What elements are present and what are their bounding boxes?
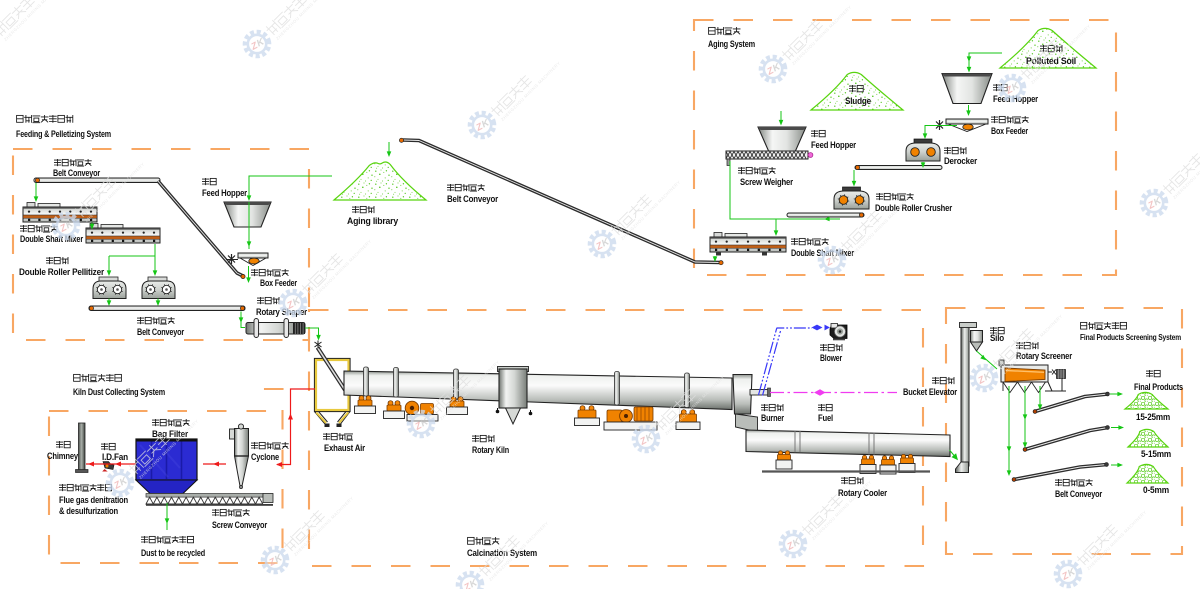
svg-text:& desulfurization: & desulfurization xyxy=(59,506,118,516)
svg-text:Kiln Dust Collecting System: Kiln Dust Collecting System xyxy=(73,387,165,397)
svg-text:Flue gas denitration: Flue gas denitration xyxy=(59,495,128,505)
svg-text:Cyclone: Cyclone xyxy=(251,452,279,462)
svg-text:Sludge: Sludge xyxy=(845,96,871,106)
svg-text:Feed Hopper: Feed Hopper xyxy=(811,140,857,150)
svg-text:ZHENGZHOU MINING MACHINERY: ZHENGZHOU MINING MACHINERY xyxy=(311,238,373,300)
svg-text:ZHENGZHOU MINING MACHINERY: ZHENGZHOU MINING MACHINERY xyxy=(1172,138,1200,200)
svg-text:Belt Conveyor: Belt Conveyor xyxy=(53,168,101,178)
svg-text:Belt Conveyor: Belt Conveyor xyxy=(137,327,185,337)
svg-text:Belt Conveyor: Belt Conveyor xyxy=(1055,489,1103,499)
svg-text:Final Products Screening Syste: Final Products Screening System xyxy=(1080,332,1181,342)
svg-text:Chimney: Chimney xyxy=(47,451,78,461)
svg-text:Double Roller Crusher: Double Roller Crusher xyxy=(875,203,953,213)
svg-text:Rotary Kiln: Rotary Kiln xyxy=(472,445,509,455)
svg-text:0-5mm: 0-5mm xyxy=(1143,485,1169,496)
svg-text:Silo: Silo xyxy=(990,333,1005,343)
svg-text:Fuel: Fuel xyxy=(818,413,833,423)
svg-text:Double Roller Pellitizer: Double Roller Pellitizer xyxy=(19,267,105,277)
svg-text:Screw Weigher: Screw Weigher xyxy=(740,177,794,187)
svg-text:Feed Hopper: Feed Hopper xyxy=(202,188,248,198)
svg-text:Aging System: Aging System xyxy=(708,39,755,49)
svg-text:Blower: Blower xyxy=(820,353,843,363)
svg-text:ZHENGZHOU MINING MACHINERY: ZHENGZHOU MINING MACHINERY xyxy=(791,4,853,66)
svg-text:Box Feeder: Box Feeder xyxy=(991,126,1029,136)
svg-text:I.D.Fan: I.D.Fan xyxy=(102,452,128,462)
svg-text:5-15mm: 5-15mm xyxy=(1141,449,1171,460)
svg-text:Bucket Elevator: Bucket Elevator xyxy=(903,387,958,397)
svg-text:Derocker: Derocker xyxy=(944,156,978,166)
svg-text:ZHENGZHOU MINING MACHINERY: ZHENGZHOU MINING MACHINERY xyxy=(275,0,337,41)
svg-text:Screw Conveyor: Screw Conveyor xyxy=(212,520,268,530)
svg-text:ZHENGZHOU MINING MACHINERY: ZHENGZHOU MINING MACHINERY xyxy=(620,179,682,241)
svg-text:Box Feeder: Box Feeder xyxy=(260,278,298,288)
svg-text:15-25mm: 15-25mm xyxy=(1136,412,1170,423)
svg-text:Belt Conveyor: Belt Conveyor xyxy=(447,194,499,204)
svg-text:ZHENGZHOU MINING MACHINERY: ZHENGZHOU MINING MACHINERY xyxy=(500,60,562,122)
svg-text:Exhaust Air: Exhaust Air xyxy=(324,443,366,453)
svg-text:ZHENGZHOU MINING MACHINERY: ZHENGZHOU MINING MACHINERY xyxy=(293,495,355,557)
svg-text:Feeding & Pelletizing System: Feeding & Pelletizing System xyxy=(16,129,111,139)
svg-text:Dust to be recycled: Dust to be recycled xyxy=(141,548,205,558)
svg-text:ZHENGZHOU MINING MACHINERY: ZHENGZHOU MINING MACHINERY xyxy=(3,0,65,42)
svg-text:Burner: Burner xyxy=(761,413,785,423)
svg-text:Final Products: Final Products xyxy=(1134,382,1183,392)
svg-text:Aging library: Aging library xyxy=(347,216,398,226)
svg-text:ZHENGZHOU MINING MACHINERY: ZHENGZHOU MINING MACHINERY xyxy=(1086,509,1148,571)
